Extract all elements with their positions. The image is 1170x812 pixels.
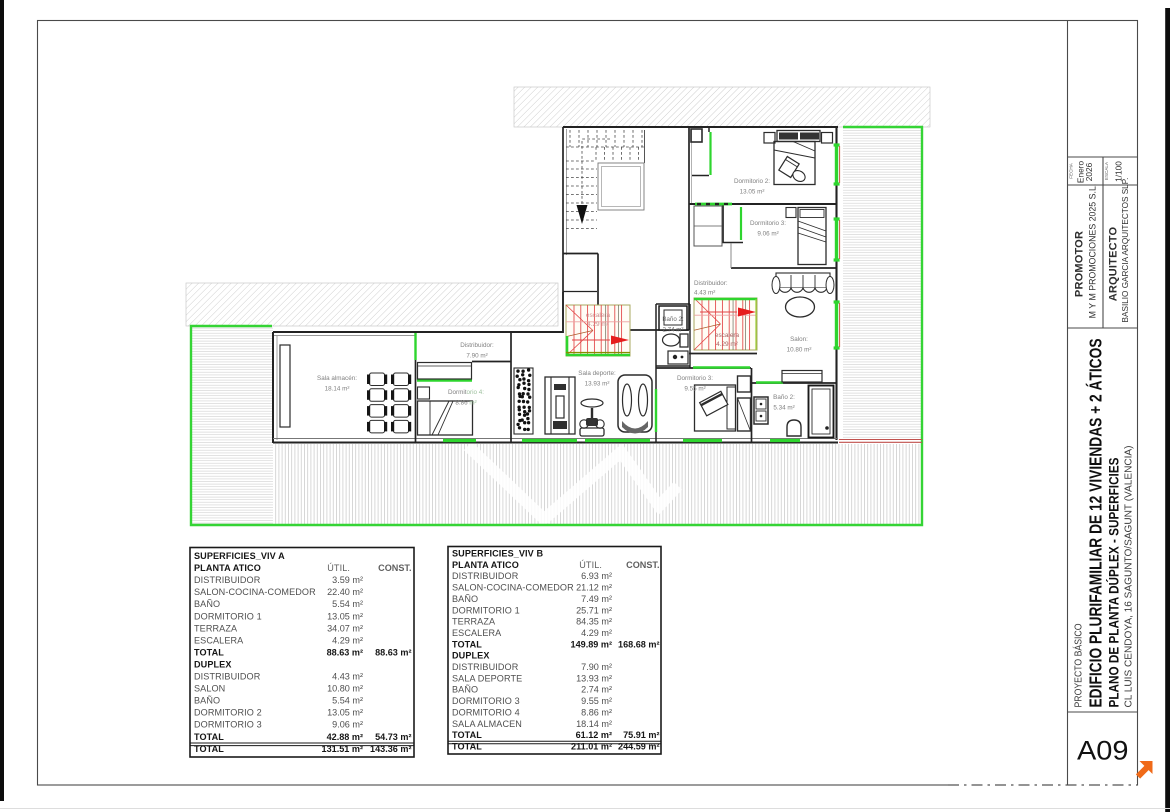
svg-text:4.43 m²: 4.43 m² (332, 672, 363, 682)
svg-text:5.54 m²: 5.54 m² (332, 696, 363, 706)
svg-text:TOTAL: TOTAL (452, 730, 482, 740)
svg-text:BAÑO: BAÑO (194, 696, 220, 706)
svg-text:84.35 m²: 84.35 m² (576, 617, 612, 627)
svg-text:34.07 m²: 34.07 m² (327, 623, 363, 633)
svg-text:DORMITORIO 3: DORMITORIO 3 (452, 696, 520, 706)
svg-text:CONST.: CONST. (378, 563, 411, 573)
svg-text:SALA ALMACEN: SALA ALMACEN (452, 719, 522, 729)
svg-text:9.55 m²: 9.55 m² (684, 386, 705, 393)
svg-text:Salon:: Salon: (790, 336, 808, 343)
svg-text:escalera: escalera (715, 332, 740, 339)
svg-text:ESCALERA: ESCALERA (194, 635, 244, 645)
svg-text:SUPERFICIES_VIV A: SUPERFICIES_VIV A (194, 551, 285, 561)
svg-text:DORMITORIO 1: DORMITORIO 1 (194, 611, 262, 621)
svg-text:DORMITORIO 3: DORMITORIO 3 (194, 720, 262, 730)
svg-text:SALA DEPORTE: SALA DEPORTE (452, 673, 522, 683)
svg-text:ÚTIL.: ÚTIL. (327, 563, 350, 573)
svg-text:75.91 m²: 75.91 m² (623, 730, 659, 740)
svg-text:DUPLEX: DUPLEX (194, 659, 232, 669)
svg-text:TERRAZA: TERRAZA (452, 617, 496, 627)
svg-text:211.01 m²: 211.01 m² (571, 741, 612, 751)
svg-text:22.40 m²: 22.40 m² (327, 587, 363, 597)
svg-text:SUPERFICIES_VIV B: SUPERFICIES_VIV B (452, 549, 543, 559)
svg-text:21.12 m²: 21.12 m² (576, 583, 612, 593)
svg-text:149.89 m²: 149.89 m² (571, 639, 612, 649)
svg-text:Sala almacén:: Sala almacén: (317, 375, 357, 382)
svg-text:2.74 m²: 2.74 m² (663, 327, 684, 334)
svg-text:7.90 m²: 7.90 m² (466, 353, 487, 360)
svg-text:143.36 m²: 143.36 m² (370, 744, 411, 754)
svg-text:FECHA: FECHA (1069, 162, 1074, 179)
svg-text:DISTRIBUIDOR: DISTRIBUIDOR (452, 662, 519, 672)
svg-text:6.93 m²: 6.93 m² (581, 571, 612, 581)
svg-text:5.34 m²: 5.34 m² (773, 405, 794, 412)
svg-text:Sala deporte:: Sala deporte: (578, 370, 616, 377)
svg-text:ESCALERA: ESCALERA (452, 628, 502, 638)
svg-text:131.51 m²: 131.51 m² (322, 744, 363, 754)
svg-text:PLANO DE PLANTA DÚPLEX - SUPER: PLANO DE PLANTA DÚPLEX - SUPERFICIES (1107, 458, 1122, 708)
svg-text:7.49 m²: 7.49 m² (581, 594, 612, 604)
svg-text:61.12 m²: 61.12 m² (576, 730, 612, 740)
svg-text:BAÑO: BAÑO (452, 685, 478, 695)
svg-text:TOTAL: TOTAL (194, 647, 224, 657)
svg-text:SALON-COCINA-COMEDOR: SALON-COCINA-COMEDOR (194, 587, 316, 597)
svg-text:Dormitorio 3:: Dormitorio 3: (677, 375, 713, 382)
svg-text:SALON: SALON (194, 684, 225, 694)
svg-text:88.63 m²: 88.63 m² (375, 647, 411, 657)
svg-text:4.43 m²: 4.43 m² (694, 290, 715, 297)
svg-text:DUPLEX: DUPLEX (452, 651, 490, 661)
svg-text:BAÑO: BAÑO (194, 599, 220, 609)
svg-text:9.55 m²: 9.55 m² (581, 696, 612, 706)
svg-text:Dormitorio 2:: Dormitorio 2: (734, 178, 770, 185)
svg-text:TOTAL: TOTAL (194, 732, 224, 742)
svg-text:PROYECTO BÁSICO: PROYECTO BÁSICO (1072, 623, 1085, 707)
svg-text:4.29 m²: 4.29 m² (587, 321, 609, 328)
svg-text:9.06 m²: 9.06 m² (757, 231, 778, 238)
svg-text:3.59 m²: 3.59 m² (332, 575, 363, 585)
svg-text:10.80 m²: 10.80 m² (787, 347, 812, 354)
svg-text:13.05 m²: 13.05 m² (327, 708, 363, 718)
svg-text:DORMITORIO 4: DORMITORIO 4 (452, 707, 520, 717)
svg-text:DISTRIBUIDOR: DISTRIBUIDOR (452, 571, 519, 581)
svg-text:4.29 m²: 4.29 m² (332, 635, 363, 645)
svg-text:54.73 m²: 54.73 m² (375, 732, 411, 742)
svg-text:13.05 m²: 13.05 m² (740, 189, 765, 196)
svg-text:13.05 m²: 13.05 m² (327, 611, 363, 621)
svg-text:EDIFICIO PLURIFAMILIAR DE 12 V: EDIFICIO PLURIFAMILIAR DE 12 VIVIENDAS +… (1085, 339, 1106, 708)
svg-text:168.68 m²: 168.68 m² (618, 639, 659, 649)
svg-text:244.59 m²: 244.59 m² (618, 741, 659, 751)
svg-text:PLANTA ATICO: PLANTA ATICO (452, 560, 519, 570)
svg-text:9.06 m²: 9.06 m² (332, 720, 363, 730)
svg-text:2026: 2026 (1084, 162, 1094, 181)
svg-text:PROMOTOR: PROMOTOR (1074, 231, 1086, 297)
svg-text:Distribuidor:: Distribuidor: (694, 280, 728, 287)
svg-text:88.63 m²: 88.63 m² (327, 647, 363, 657)
svg-text:TOTAL: TOTAL (452, 639, 482, 649)
svg-text:42.88 m²: 42.88 m² (327, 732, 363, 742)
svg-text:4.29 m²: 4.29 m² (581, 628, 612, 638)
svg-text:25.71 m²: 25.71 m² (576, 605, 612, 615)
svg-text:TERRAZA: TERRAZA (194, 623, 238, 633)
svg-text:10.80 m²: 10.80 m² (327, 684, 363, 694)
svg-text:PLANTA ATICO: PLANTA ATICO (194, 563, 261, 573)
svg-text:ÚTIL.: ÚTIL. (579, 560, 602, 570)
svg-text:7.90 m²: 7.90 m² (581, 662, 612, 672)
svg-text:18.14 m²: 18.14 m² (325, 386, 350, 393)
svg-text:BAÑO: BAÑO (452, 594, 478, 604)
svg-text:Baño 2:: Baño 2: (662, 316, 684, 323)
svg-text:M Y M PROMOCIONES 2025 S.L.: M Y M PROMOCIONES 2025 S.L. (1088, 184, 1098, 319)
svg-text:13.93 m²: 13.93 m² (576, 673, 612, 683)
svg-text:A09: A09 (1077, 736, 1129, 766)
svg-text:Distribuidor:: Distribuidor: (460, 342, 494, 349)
svg-text:13.93 m²: 13.93 m² (585, 381, 610, 388)
svg-text:CL LUIS CENDOYA, 16 SAGUNTO/SA: CL LUIS CENDOYA, 16 SAGUNTO/SAGUNT (VALE… (1123, 446, 1135, 708)
svg-text:DISTRIBUIDOR: DISTRIBUIDOR (194, 575, 261, 585)
svg-text:CONST.: CONST. (626, 560, 659, 570)
svg-text:5.54 m²: 5.54 m² (332, 599, 363, 609)
svg-text:Baño 2:: Baño 2: (773, 394, 795, 401)
svg-text:8.86 m²: 8.86 m² (581, 707, 612, 717)
svg-text:ARQUITECTO: ARQUITECTO (1108, 227, 1120, 302)
svg-text:DORMITORIO 1: DORMITORIO 1 (452, 605, 520, 615)
svg-text:2.74 m²: 2.74 m² (581, 685, 612, 695)
svg-text:BASILIO GARCIA ARQUITECTOS SLP: BASILIO GARCIA ARQUITECTOS SLP. (1121, 178, 1130, 323)
svg-text:escalera: escalera (586, 312, 611, 319)
svg-text:4.29 m²: 4.29 m² (716, 341, 738, 348)
svg-text:SALON-COCINA-COMEDOR: SALON-COCINA-COMEDOR (452, 583, 574, 593)
svg-text:TOTAL: TOTAL (194, 744, 224, 754)
svg-text:18.14 m²: 18.14 m² (576, 719, 612, 729)
svg-text:DORMITORIO 2: DORMITORIO 2 (194, 708, 262, 718)
svg-text:ESCALA: ESCALA (1104, 161, 1109, 180)
svg-text:TOTAL: TOTAL (452, 741, 482, 751)
svg-text:8.86 m²: 8.86 m² (455, 400, 476, 407)
svg-text:DISTRIBUIDOR: DISTRIBUIDOR (194, 672, 261, 682)
svg-text:Dormitorio 3:: Dormitorio 3: (750, 220, 786, 227)
svg-text:Dormitorio 4:: Dormitorio 4: (448, 389, 484, 396)
